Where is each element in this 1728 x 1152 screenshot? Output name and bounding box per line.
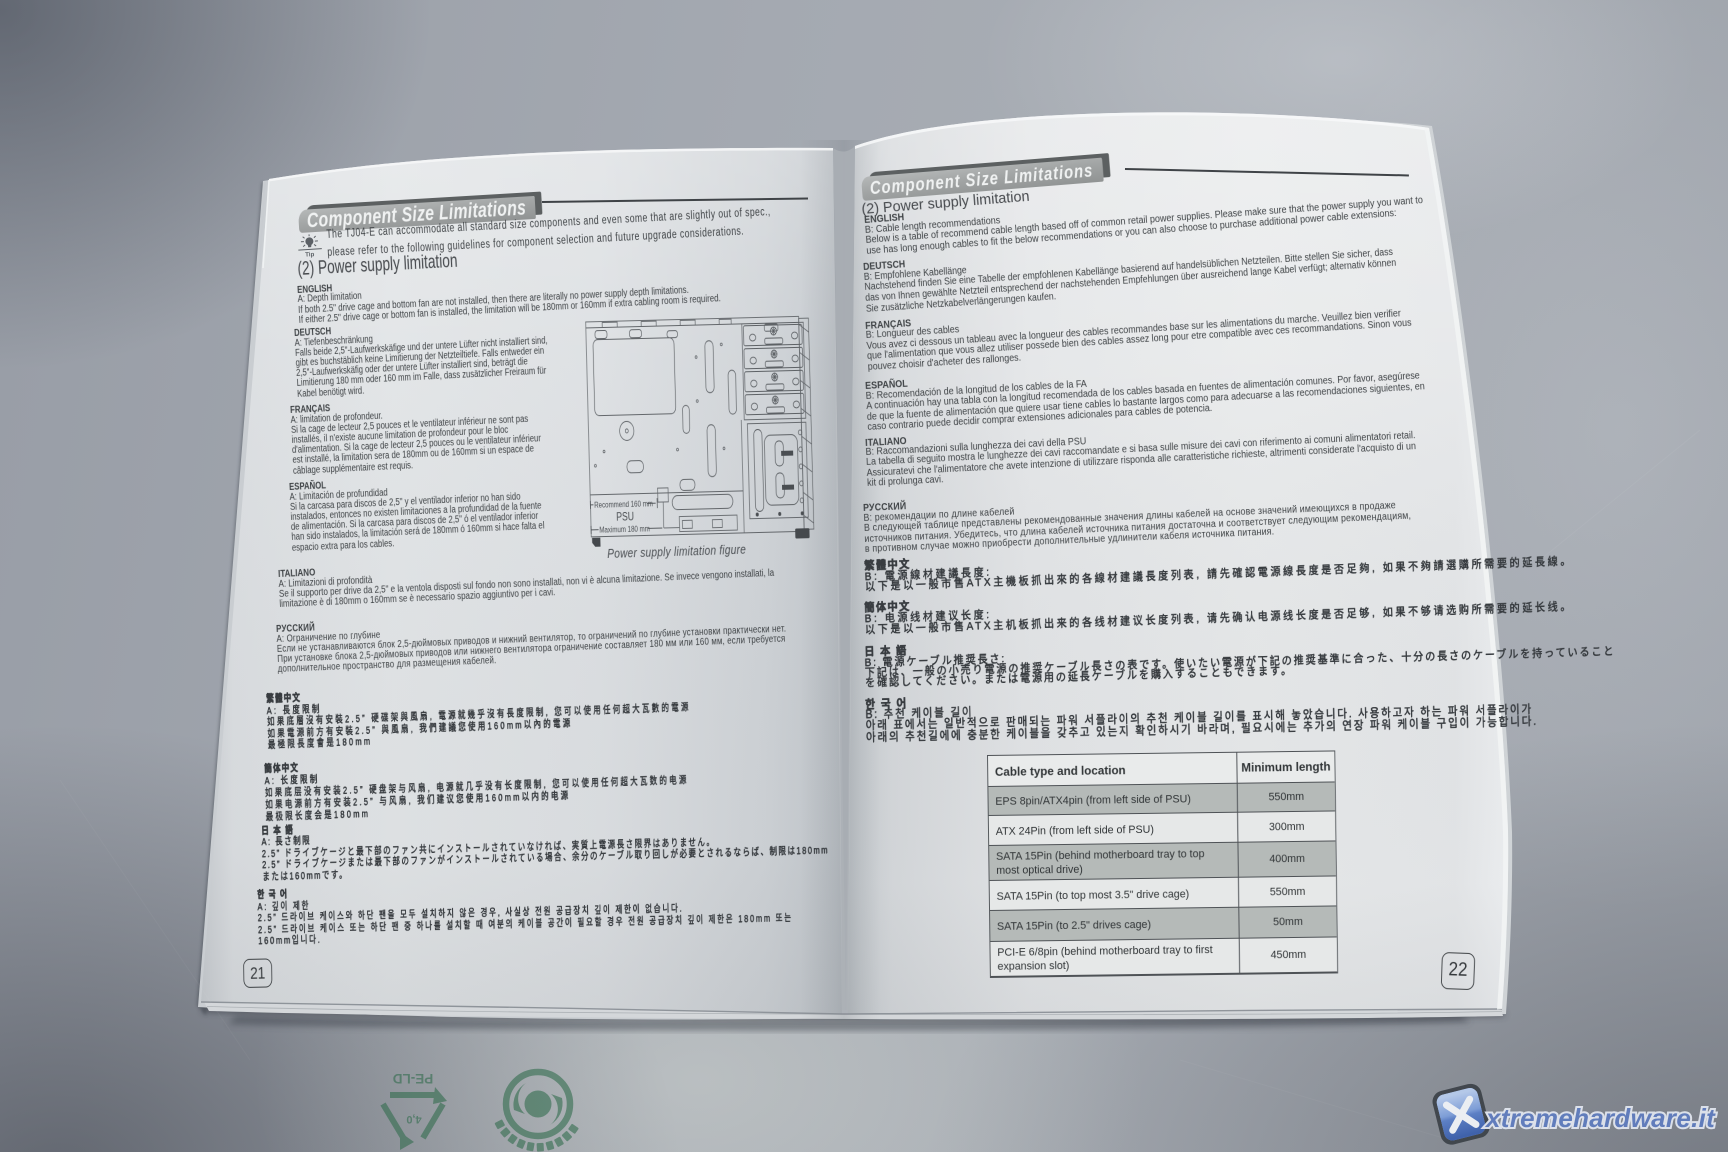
- svg-text:Recommend 160 mm: Recommend 160 mm: [594, 498, 653, 510]
- svg-text:Maximum 180 mm: Maximum 180 mm: [599, 523, 650, 535]
- svg-text:PSU: PSU: [616, 511, 634, 524]
- svg-text:4,0: 4,0: [406, 1113, 421, 1125]
- svg-text:xtremehardware.it: xtremehardware.it: [1484, 1103, 1716, 1133]
- svg-text:PE-LD: PE-LD: [392, 1071, 433, 1086]
